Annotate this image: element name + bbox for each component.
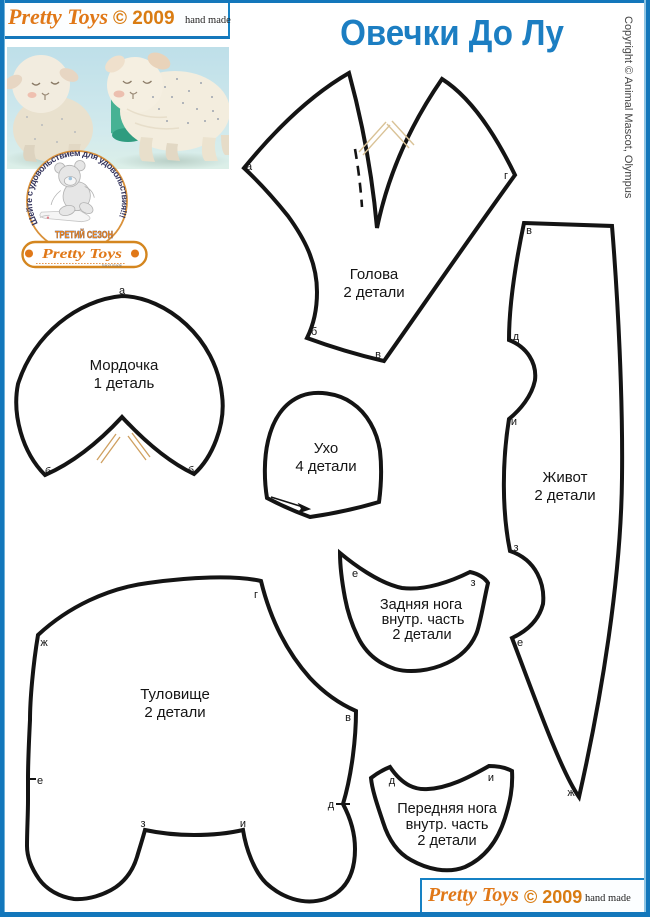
svg-text:4 детали: 4 детали: [295, 458, 356, 475]
svg-text:2 детали: 2 детали: [417, 833, 476, 849]
svg-text:1 деталь: 1 деталь: [94, 375, 155, 392]
svg-text:г: г: [254, 589, 258, 601]
svg-text:2 детали: 2 детали: [343, 284, 404, 301]
svg-text:з: з: [140, 818, 145, 830]
svg-text:в: в: [345, 712, 351, 724]
svg-text:г: г: [504, 170, 508, 182]
svg-text:з: з: [513, 542, 518, 554]
svg-text:б: б: [45, 466, 51, 478]
svg-text:и: и: [240, 818, 246, 830]
svg-text:а: а: [246, 161, 253, 173]
svg-text:2 детали: 2 детали: [534, 487, 595, 504]
svg-text:в: в: [526, 225, 532, 237]
svg-text:Голова: Голова: [350, 266, 399, 283]
svg-text:ж: ж: [40, 637, 48, 649]
svg-text:а: а: [119, 285, 126, 297]
svg-text:Мордочка: Мордочка: [90, 357, 159, 374]
svg-text:внутр. часть: внутр. часть: [382, 612, 465, 628]
svg-text:д: д: [389, 775, 396, 787]
svg-text:в: в: [375, 349, 381, 361]
svg-text:ж: ж: [567, 787, 575, 799]
svg-text:б: б: [188, 465, 194, 477]
svg-text:д: д: [513, 331, 520, 343]
svg-text:2 детали: 2 детали: [144, 704, 205, 721]
svg-text:Ухо: Ухо: [314, 440, 339, 457]
svg-text:Задняя нога: Задняя нога: [380, 597, 463, 613]
svg-text:з: з: [470, 577, 475, 589]
svg-text:внутр. часть: внутр. часть: [406, 817, 489, 833]
svg-text:Туловище: Туловище: [140, 686, 210, 703]
svg-text:е: е: [517, 637, 523, 649]
svg-text:Живот: Живот: [543, 469, 588, 486]
svg-text:и: и: [488, 772, 494, 784]
svg-text:Передняя нога: Передняя нога: [397, 801, 498, 817]
svg-text:и: и: [511, 416, 517, 428]
svg-text:е: е: [37, 775, 43, 787]
svg-text:е: е: [352, 568, 358, 580]
svg-text:2 детали: 2 детали: [392, 627, 451, 643]
svg-text:б: б: [311, 326, 317, 338]
svg-text:д: д: [328, 799, 335, 811]
